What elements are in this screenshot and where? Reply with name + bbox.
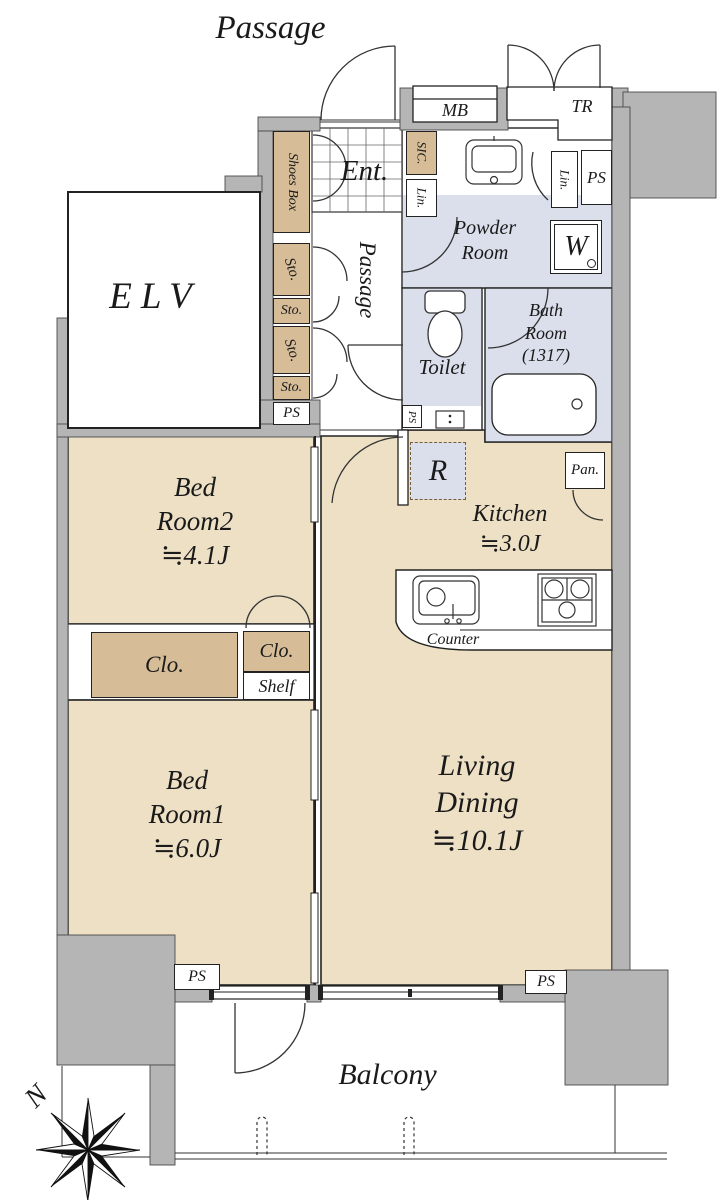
closet-hall: Clo. <box>243 631 310 672</box>
storage-3: Sto. <box>273 326 310 374</box>
pipe-space-powder: PS <box>581 150 612 205</box>
closet-bed2: Clo. <box>91 632 238 698</box>
closet-hall-label: Clo. <box>260 640 294 663</box>
floor-plan: Shoes Box Sto. Sto. Sto. Sto. PS MB TR S… <box>0 0 718 1200</box>
shelf: Shelf <box>243 672 310 700</box>
storage-1-label: Sto. <box>280 256 303 283</box>
shoes-in-closet-label: SIC. <box>414 142 430 165</box>
shoes-in-closet: SIC. <box>406 131 437 175</box>
entrance-tile-floor <box>312 128 402 212</box>
linen-hall-label: Lin. <box>414 188 430 209</box>
linen-powder: Lin. <box>551 151 578 208</box>
pipe-space-living-label: PS <box>537 973 555 991</box>
storage-2: Sto. <box>273 298 310 324</box>
pipe-space-column: PS <box>273 402 310 425</box>
shoes-box: Shoes Box <box>273 131 310 233</box>
storage-4: Sto. <box>273 376 310 400</box>
compass-rose-icon <box>36 1098 140 1200</box>
washing-machine: W <box>550 220 602 274</box>
pantry-label: Pan. <box>571 462 599 479</box>
washer-door-icon <box>587 259 596 268</box>
storage-4-label: Sto. <box>281 380 302 396</box>
toilet-basin-icon <box>436 411 464 428</box>
shoes-box-label: Shoes Box <box>284 153 300 211</box>
shelf-label: Shelf <box>259 676 295 697</box>
balcony-windows <box>209 985 503 1000</box>
linen-powder-label: Lin. <box>557 169 573 190</box>
storage-1: Sto. <box>273 243 310 296</box>
kitchen-counter <box>396 570 612 650</box>
linen-hall: Lin. <box>406 179 437 217</box>
pipe-space-bed1-label: PS <box>188 968 206 986</box>
pipe-space-column-label: PS <box>283 405 300 422</box>
pipe-space-powder-label: PS <box>587 168 606 188</box>
partitions-and-sashes <box>311 436 318 985</box>
pipe-space-bed1: PS <box>174 964 220 990</box>
refrigerator-space: R <box>410 442 466 500</box>
storage-2-label: Sto. <box>281 303 302 319</box>
pipe-space-toilet-label: PS <box>406 410 418 422</box>
pipe-space-living: PS <box>525 970 567 994</box>
closet-bed2-label: Clo. <box>145 652 184 678</box>
pipe-space-toilet: PS <box>402 405 422 428</box>
toilet-icon <box>425 291 465 357</box>
elevator-shaft <box>68 192 260 428</box>
storage-3-label: Sto. <box>280 336 303 363</box>
refrigerator-label: R <box>429 454 447 488</box>
pantry: Pan. <box>565 452 605 489</box>
